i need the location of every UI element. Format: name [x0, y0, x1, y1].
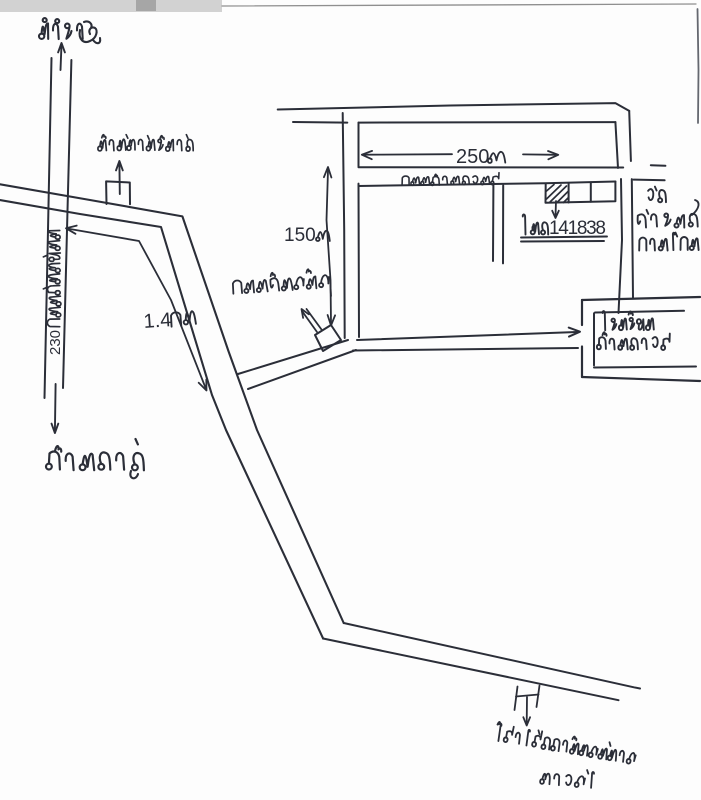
svg-text:230: 230 [47, 330, 64, 355]
svg-text:150: 150 [284, 225, 316, 246]
svg-text:250: 250 [456, 146, 489, 168]
svg-text:1.4: 1.4 [143, 309, 172, 333]
